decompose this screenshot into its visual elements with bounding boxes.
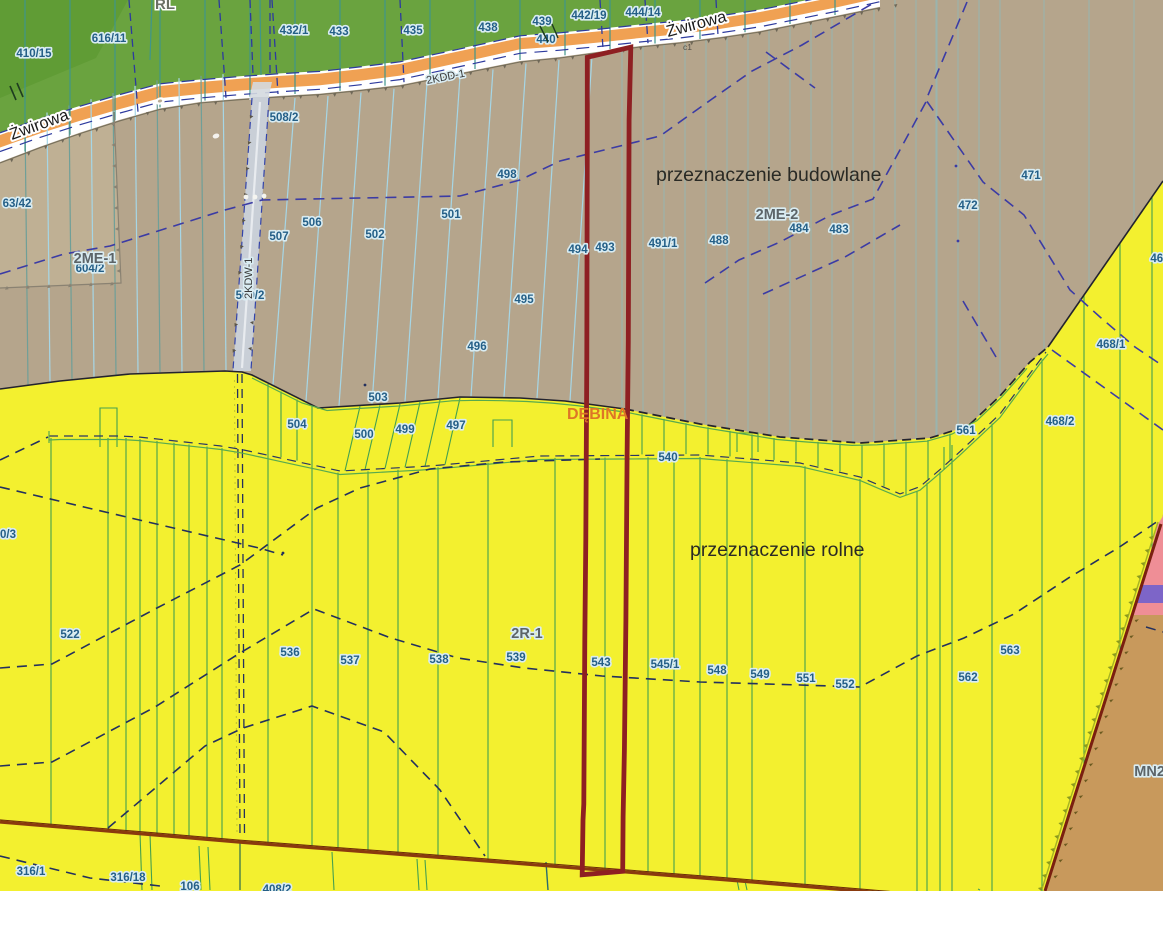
svg-text:0/3: 0/3 xyxy=(0,529,16,541)
svg-text:2ME-1: 2ME-1 xyxy=(74,251,117,267)
svg-text:540: 540 xyxy=(658,452,677,464)
svg-text:442/19: 442/19 xyxy=(571,10,606,22)
svg-text:c1: c1 xyxy=(683,42,692,52)
svg-text:562: 562 xyxy=(958,672,977,684)
svg-text:483: 483 xyxy=(829,224,848,236)
svg-text:przeznaczenie budowlane: przeznaczenie budowlane xyxy=(656,164,882,186)
svg-text:495: 495 xyxy=(514,294,534,306)
svg-text:543: 543 xyxy=(591,657,610,669)
svg-text:501: 501 xyxy=(441,209,461,221)
svg-text:2R-1: 2R-1 xyxy=(511,626,542,642)
svg-text:przeznaczenie rolne: przeznaczenie rolne xyxy=(690,539,865,561)
svg-text:498: 498 xyxy=(497,169,517,181)
svg-text:RL: RL xyxy=(155,0,175,13)
svg-text:552: 552 xyxy=(835,679,854,691)
svg-text:2ME-2: 2ME-2 xyxy=(756,207,799,223)
svg-text:507: 507 xyxy=(269,231,288,243)
svg-text:439: 439 xyxy=(532,16,551,28)
svg-text:491/1: 491/1 xyxy=(649,238,678,250)
svg-text:545/1: 545/1 xyxy=(651,659,680,671)
svg-text:316/18: 316/18 xyxy=(110,872,146,884)
svg-text:536: 536 xyxy=(280,647,299,659)
svg-text:538: 538 xyxy=(429,654,449,666)
svg-text:432/1: 432/1 xyxy=(280,25,309,37)
svg-text:438: 438 xyxy=(478,22,498,34)
svg-text:493: 493 xyxy=(595,242,614,254)
svg-text:468/1: 468/1 xyxy=(1097,339,1126,351)
svg-text:522: 522 xyxy=(60,629,79,641)
svg-text:488: 488 xyxy=(709,235,729,247)
svg-text:435: 435 xyxy=(403,25,423,37)
svg-text:484: 484 xyxy=(789,223,809,235)
svg-text:508/2: 508/2 xyxy=(270,112,299,124)
svg-text:433: 433 xyxy=(329,26,348,38)
svg-text:494: 494 xyxy=(568,244,588,256)
svg-text:500: 500 xyxy=(354,429,373,441)
svg-text:549: 549 xyxy=(750,669,769,681)
svg-text:468: 468 xyxy=(1150,253,1163,265)
svg-text:506: 506 xyxy=(302,217,321,229)
svg-text:2KDW-1: 2KDW-1 xyxy=(243,258,255,299)
svg-text:616/11: 616/11 xyxy=(92,33,127,45)
svg-text:472: 472 xyxy=(958,200,977,212)
svg-text:503: 503 xyxy=(368,392,387,404)
svg-text:444/14: 444/14 xyxy=(625,7,661,19)
svg-text:63/42: 63/42 xyxy=(3,198,32,210)
svg-text:316/1: 316/1 xyxy=(17,866,46,878)
svg-text:468/2: 468/2 xyxy=(1046,416,1075,428)
svg-text:548: 548 xyxy=(707,665,727,677)
svg-text:410/15: 410/15 xyxy=(16,48,52,60)
svg-text:504: 504 xyxy=(287,419,307,431)
svg-text:499: 499 xyxy=(395,424,414,436)
svg-text:496: 496 xyxy=(467,341,486,353)
svg-text:497: 497 xyxy=(446,420,465,432)
svg-text:537: 537 xyxy=(340,655,359,667)
svg-text:539: 539 xyxy=(506,652,525,664)
svg-text:563: 563 xyxy=(1000,645,1019,657)
svg-text:DĘBINA: DĘBINA xyxy=(567,406,629,423)
svg-text:MN2-: MN2- xyxy=(1134,764,1163,780)
svg-text:502: 502 xyxy=(365,229,384,241)
svg-text:551: 551 xyxy=(796,673,816,685)
svg-text:440: 440 xyxy=(536,34,555,46)
svg-text:471: 471 xyxy=(1021,170,1041,182)
svg-text:561: 561 xyxy=(956,425,976,437)
